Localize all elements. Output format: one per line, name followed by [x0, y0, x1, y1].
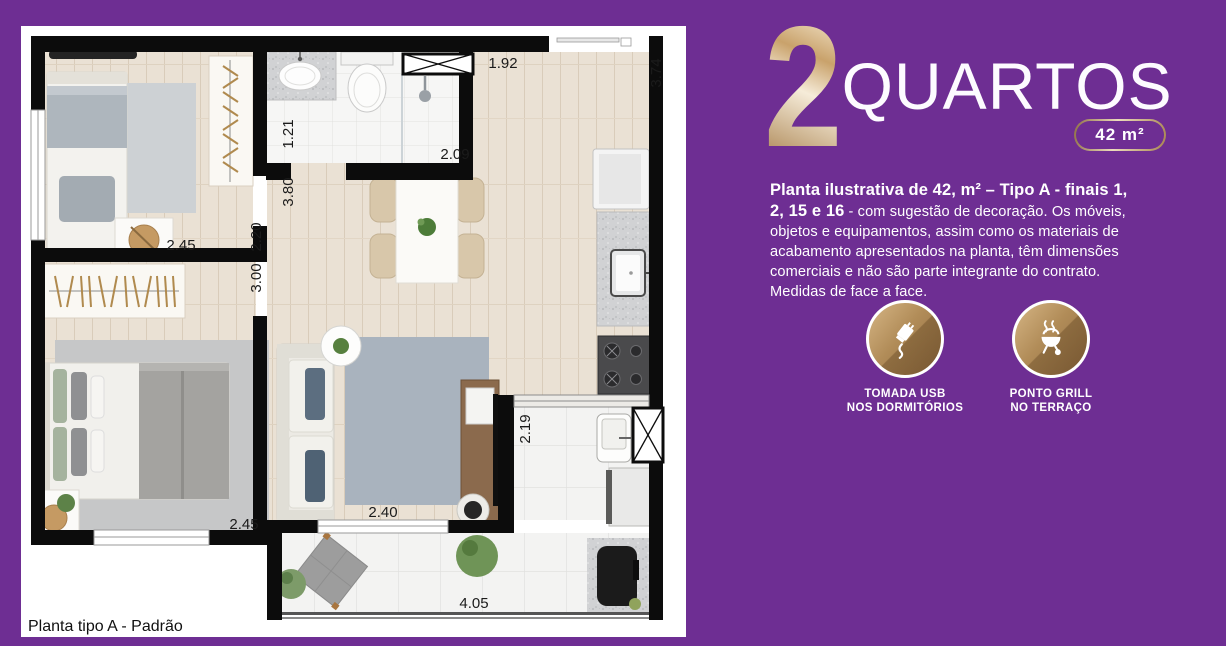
measurement-bedroom2-width: 2.45: [229, 516, 258, 533]
measurement-hall-length: 3.80: [280, 177, 297, 206]
info-panel: 2 QUARTOS 42 m² Planta ilustrativa de 42…: [686, 0, 1226, 646]
window-living: [318, 520, 448, 533]
measurement-bedroom2-length: 3.00: [248, 263, 265, 292]
floorplan-card: 1.92 3.74 1.21 2.09 3.80 2.20 3.00 2.45 …: [21, 26, 686, 637]
bedroom1-blanket: [47, 86, 127, 148]
features: TOMADA USB NOS DORMITÓRIOS: [686, 0, 1226, 646]
measurement-terrace-width: 4.05: [459, 595, 488, 612]
page-background: 1.92 3.74 1.21 2.09 3.80 2.20 3.00 2.45 …: [0, 0, 1226, 646]
shower-glass: [401, 74, 403, 163]
feature-usb-label-line2: NOS DORMITÓRIOS: [830, 401, 980, 415]
feature-grill-label-line2: NO TERRAÇO: [976, 401, 1126, 415]
terrace-plant-2-leaf: [462, 540, 478, 556]
grill-icon: [1030, 318, 1072, 360]
wall-terrace-left: [267, 533, 282, 620]
stove: [598, 336, 650, 394]
feature-usb-label: TOMADA USB NOS DORMITÓRIOS: [830, 387, 980, 415]
feature-grill-circle: [1012, 300, 1090, 378]
feature-grill-label: PONTO GRILL NO TERRAÇO: [976, 387, 1126, 415]
terrace-plant-2: [456, 535, 498, 577]
usb-outlet-icon: [884, 318, 926, 360]
window-bedroom2: [94, 530, 209, 545]
window-bedroom1: [31, 110, 45, 240]
window-kitchen-service: [514, 395, 649, 407]
kitchen-drain: [629, 271, 633, 275]
terrace-railing-2: [282, 617, 649, 619]
terrace-plant-3: [629, 598, 641, 610]
dining-plant-leaf: [418, 219, 425, 226]
floorplan-svg: 1.92 3.74 1.21 2.09 3.80 2.20 3.00 2.45 …: [21, 26, 686, 620]
kitchen: [593, 149, 655, 394]
bedroom2-duvet-top: [139, 363, 229, 371]
feature-grill: PONTO GRILL NO TERRAÇO: [976, 300, 1126, 415]
tv: [493, 394, 498, 506]
measurement-bathroom-width: 1.21: [280, 119, 297, 148]
measurement-bathroom-length: 2.09: [440, 146, 469, 163]
shower-head: [419, 90, 431, 102]
kitchen-sink-basin: [616, 255, 640, 291]
measurement-living-width: 2.40: [368, 504, 397, 521]
washing-machine-panel: [606, 470, 612, 524]
measurement-kitchen-length: 3.74: [648, 58, 665, 87]
sofa-pillow-2: [305, 450, 325, 502]
bedroom1-blanket-fold: [47, 86, 127, 95]
feature-usb-label-line1: TOMADA USB: [830, 387, 980, 401]
measurement-entry-hall-width: 1.92: [488, 55, 517, 72]
wall-bedroom1-right-upper: [253, 36, 267, 176]
wall-bedroom2-right: [253, 316, 267, 530]
feature-usb-circle: [866, 300, 944, 378]
living-furniture: [277, 326, 499, 526]
measurement-bedroom1-width: 2.45: [166, 237, 195, 254]
bedroom2-duvet-fold: [181, 363, 184, 499]
measurement-bedroom1-length: 2.20: [248, 222, 265, 251]
shaft-service: [633, 408, 663, 462]
grill-handle: [633, 560, 639, 580]
toilet-tank: [341, 52, 393, 65]
feature-grill-label-line1: PONTO GRILL: [976, 387, 1126, 401]
wall-living-service: [498, 395, 514, 533]
laundry-tank-basin: [602, 419, 626, 449]
bedroom1-rug: [122, 83, 196, 213]
terrace-plant-1-leaf: [281, 572, 293, 584]
wall-living-bottom-right: [448, 520, 498, 533]
bedroom1-headboard: [47, 72, 127, 84]
console-box: [466, 388, 494, 424]
pouf-center: [464, 501, 482, 519]
grill: [597, 546, 637, 606]
terrace-railing: [282, 612, 649, 615]
washing-machine: [609, 468, 656, 526]
wall-bathroom-bottom-right: [346, 163, 473, 180]
wall-living-bottom-left: [267, 520, 318, 533]
fridge-front: [599, 154, 641, 204]
measurement-service-width: 2.19: [517, 414, 534, 443]
living-side-table-plant: [333, 338, 349, 354]
bedroom1-cushion: [59, 176, 115, 222]
sofa-back: [277, 358, 289, 510]
feature-usb: TOMADA USB NOS DORMITÓRIOS: [830, 300, 980, 415]
floorplan-caption: Planta tipo A - Padrão: [28, 618, 183, 636]
shaft-bathroom: [403, 54, 473, 74]
sofa-pillow-1: [305, 368, 325, 420]
wall-right: [649, 36, 663, 620]
wall-bedroom1-bottom: [31, 248, 267, 262]
entry-door: [549, 36, 649, 52]
bedroom2-plant: [57, 494, 75, 512]
